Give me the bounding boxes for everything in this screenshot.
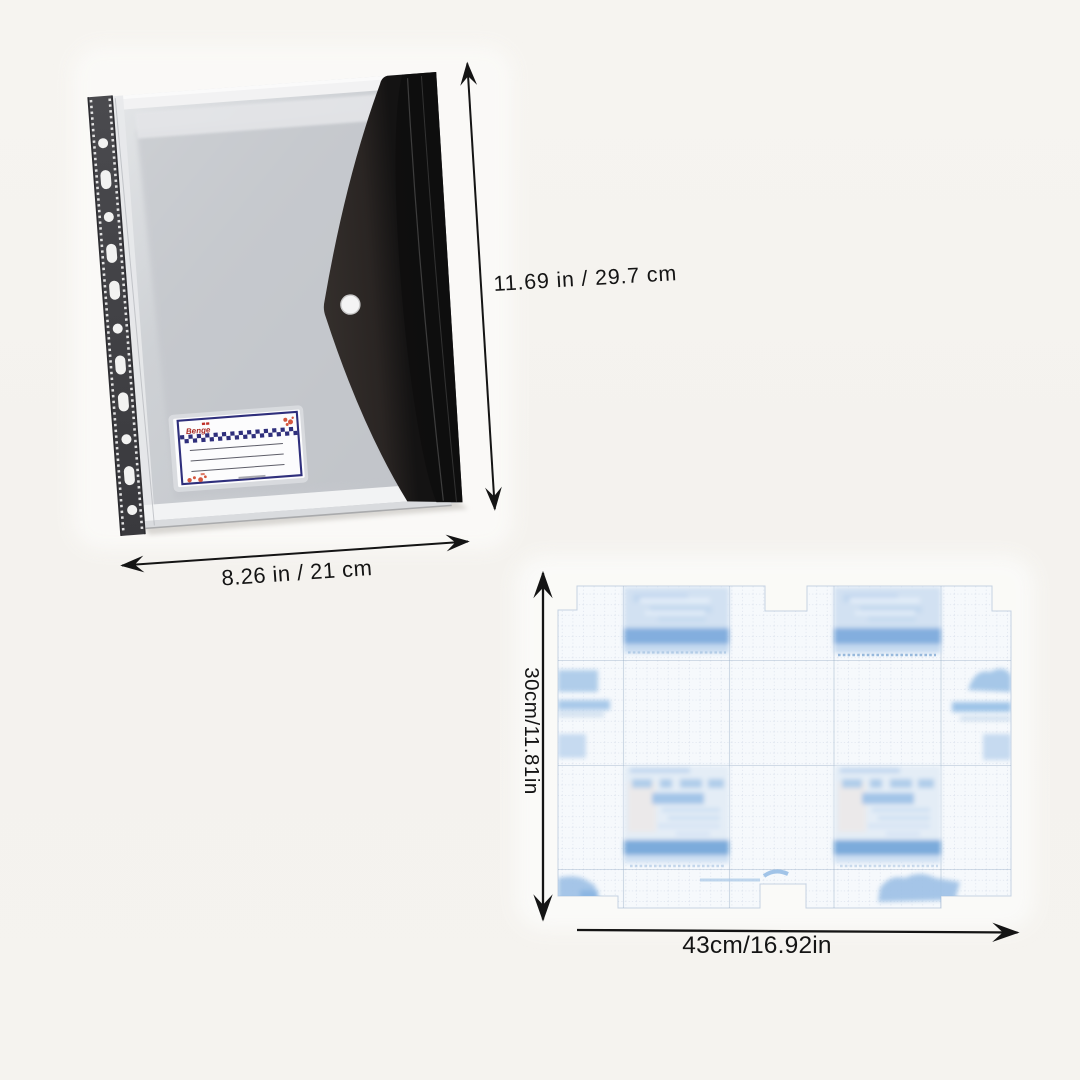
svg-text:30cm/11.81in: 30cm/11.81in [520,667,543,795]
svg-text:43cm/16.92in: 43cm/16.92in [682,932,832,959]
svg-text:Benge: Benge [186,425,212,436]
